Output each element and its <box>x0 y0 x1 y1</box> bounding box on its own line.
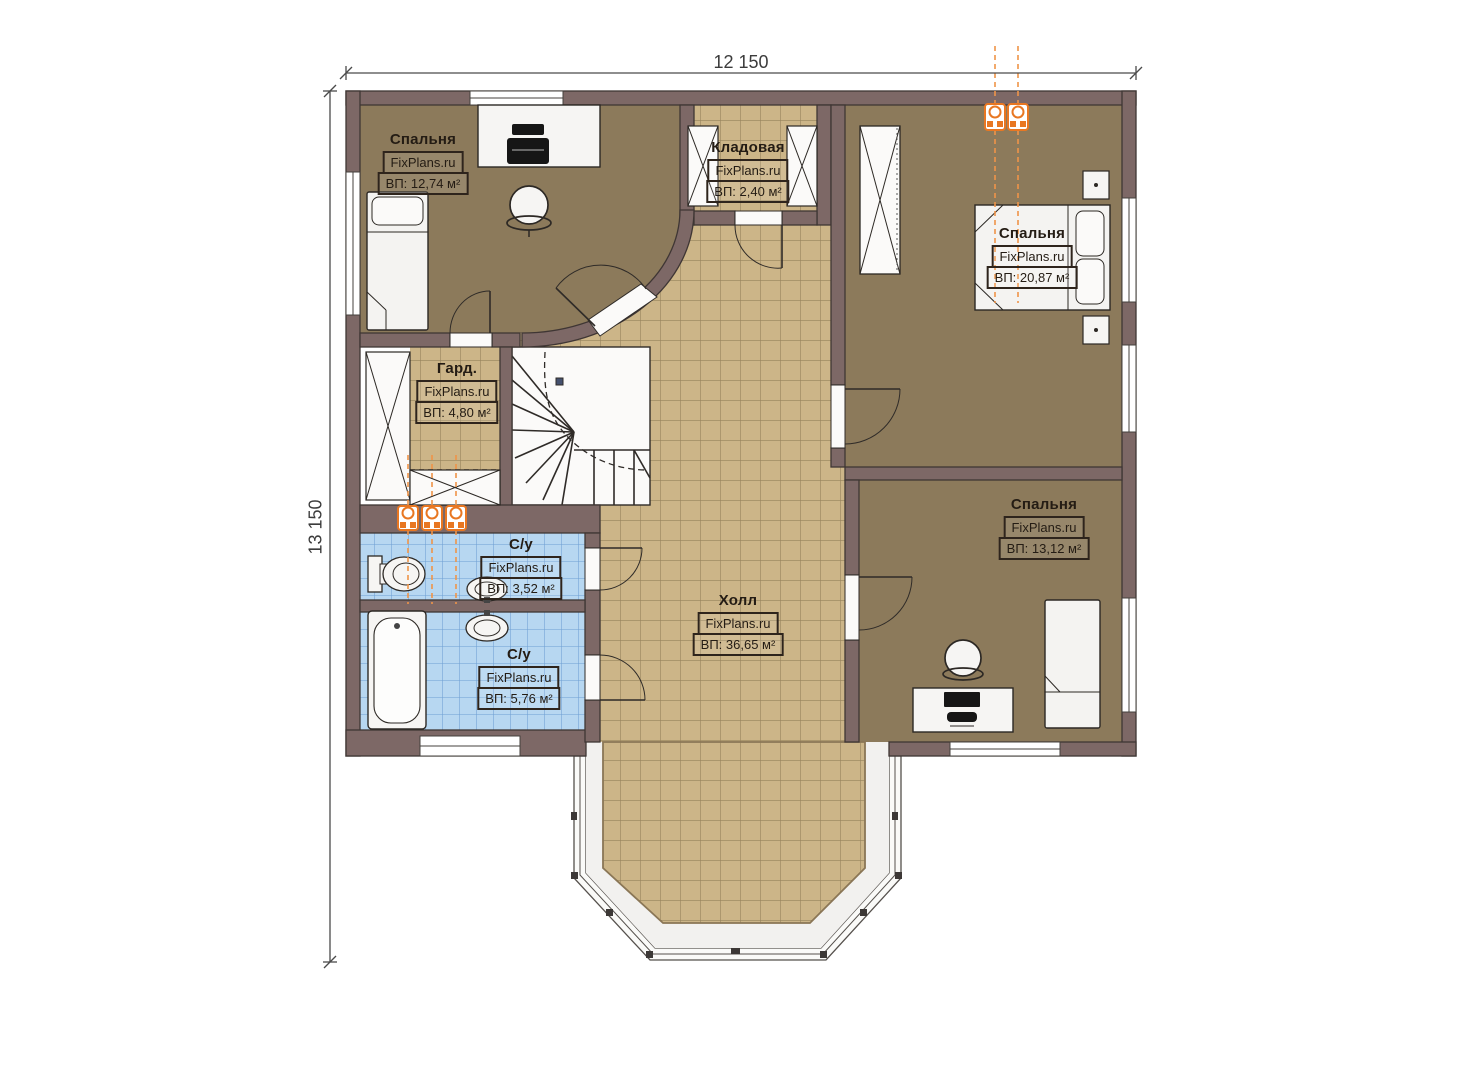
staircase <box>512 347 650 505</box>
riser-icon <box>422 506 442 530</box>
window-bottom-1 <box>420 736 520 756</box>
riser-icon <box>985 104 1005 130</box>
closet-x-icon-storage-right <box>787 126 817 206</box>
riser-icon <box>398 506 418 530</box>
window-left <box>346 172 360 315</box>
window-right-2 <box>1122 345 1136 432</box>
window-top <box>470 91 563 105</box>
desk-icon-bedroom1 <box>478 105 600 167</box>
floor-plan-page: 12 150 13 150 Спальня FixPlans.ru ВП: 12… <box>0 0 1473 1080</box>
bay-floor-tile <box>603 742 865 923</box>
bay-window <box>571 742 902 960</box>
desk-icon-bedroom3 <box>913 688 1013 732</box>
nightstand-icon-top <box>1083 171 1109 199</box>
closet-x-icon-wardrobe-bottom <box>410 470 500 505</box>
floor-plan-canvas <box>0 0 1473 1080</box>
bathtub-icon <box>368 611 426 729</box>
dimension-width-label: 12 150 <box>713 52 768 73</box>
nightstand-icon-bottom <box>1083 316 1109 344</box>
riser-icon <box>446 506 466 530</box>
closet-x-icon-wardrobe-left <box>366 352 410 500</box>
toilet-icon <box>368 556 425 592</box>
window-right-3 <box>1122 598 1136 712</box>
floors <box>360 105 1122 756</box>
dimension-height-label: 13 150 <box>306 499 327 554</box>
single-bed-icon-bedroom3 <box>1045 600 1100 728</box>
window-bottom-2 <box>950 742 1060 756</box>
bed-icon-bedroom1 <box>367 192 428 330</box>
wardrobe-floor <box>410 347 500 470</box>
stairs-post <box>556 378 563 385</box>
closet-x-icon-storage-left <box>688 126 718 206</box>
wardrobe-x-icon-bedroom2 <box>860 126 900 274</box>
riser-icon <box>1008 104 1028 130</box>
window-right-1 <box>1122 198 1136 302</box>
